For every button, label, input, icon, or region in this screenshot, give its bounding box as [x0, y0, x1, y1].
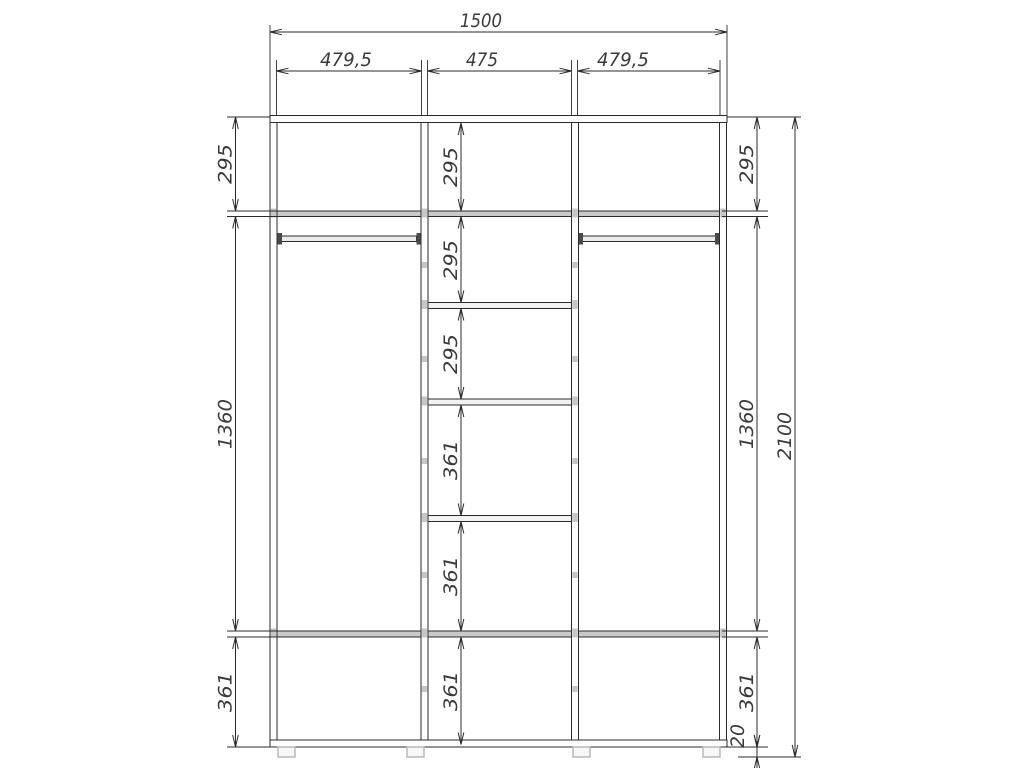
fastener-mark	[422, 513, 427, 522]
dimension-label: 361	[736, 672, 758, 712]
dimension-label: 1360	[736, 399, 758, 449]
fastener-mark	[572, 686, 577, 692]
fastener-mark	[572, 458, 577, 464]
dimension-label: 295	[440, 240, 462, 280]
fastener-mark	[422, 300, 427, 309]
dimension-label: 479,5	[597, 49, 649, 71]
rod-bracket	[715, 233, 720, 245]
fastener-mark	[572, 262, 577, 268]
fastener-mark	[572, 209, 577, 218]
fastener-mark	[422, 686, 427, 692]
fastener-mark	[720, 629, 725, 638]
dimension-label: 20	[727, 724, 749, 748]
dimension-label: 1360	[215, 399, 237, 449]
top-panel	[270, 116, 727, 123]
fastener-mark	[572, 572, 577, 578]
dimension-label: 295	[440, 334, 462, 374]
foot	[703, 747, 720, 757]
foot	[407, 747, 424, 757]
top-shelf-full	[277, 211, 720, 217]
dimension-label: 1500	[460, 10, 502, 32]
foot	[278, 747, 295, 757]
fastener-mark	[572, 300, 577, 309]
bottom-panel	[270, 740, 727, 747]
fastener-mark	[572, 629, 577, 638]
rod-bracket	[417, 233, 422, 245]
foot	[573, 747, 590, 757]
dimension-label: 295	[736, 144, 758, 184]
hanging-rod-left	[282, 236, 417, 242]
dimension-label: 475	[466, 49, 498, 71]
fastener-mark	[572, 397, 577, 406]
fastener-mark	[422, 629, 427, 638]
middle-shelf-1	[428, 303, 572, 309]
dimension-label: 295	[440, 147, 462, 187]
dimension-label: 361	[440, 440, 462, 480]
middle-shelf-3	[428, 516, 572, 522]
fastener-mark	[422, 572, 427, 578]
fastener-mark	[572, 356, 577, 362]
fastener-mark	[422, 458, 427, 464]
dimension-label: 479,5	[320, 49, 372, 71]
hanging-rod-right	[583, 236, 716, 242]
dimension-label: 361	[215, 672, 237, 712]
rod-bracket	[278, 233, 283, 245]
fastener-mark	[422, 262, 427, 268]
dimension-label: 295	[215, 144, 237, 184]
dimension-label: 361	[440, 556, 462, 596]
fastener-mark	[422, 209, 427, 218]
fastener-mark	[422, 356, 427, 362]
middle-shelf-2	[428, 399, 572, 405]
dimension-label: 361	[440, 671, 462, 711]
drawing-svg: 1500479,5475479,529513603612952952953613…	[0, 0, 1024, 768]
wardrobe-dimension-drawing: 1500479,5475479,529513603612952952953613…	[0, 0, 1024, 768]
fastener-mark	[271, 629, 276, 638]
rod-bracket	[579, 233, 584, 245]
fastener-mark	[572, 513, 577, 522]
bottom-shelf-full	[277, 631, 720, 637]
fastener-mark	[422, 397, 427, 406]
dimension-label: 2100	[774, 412, 796, 460]
